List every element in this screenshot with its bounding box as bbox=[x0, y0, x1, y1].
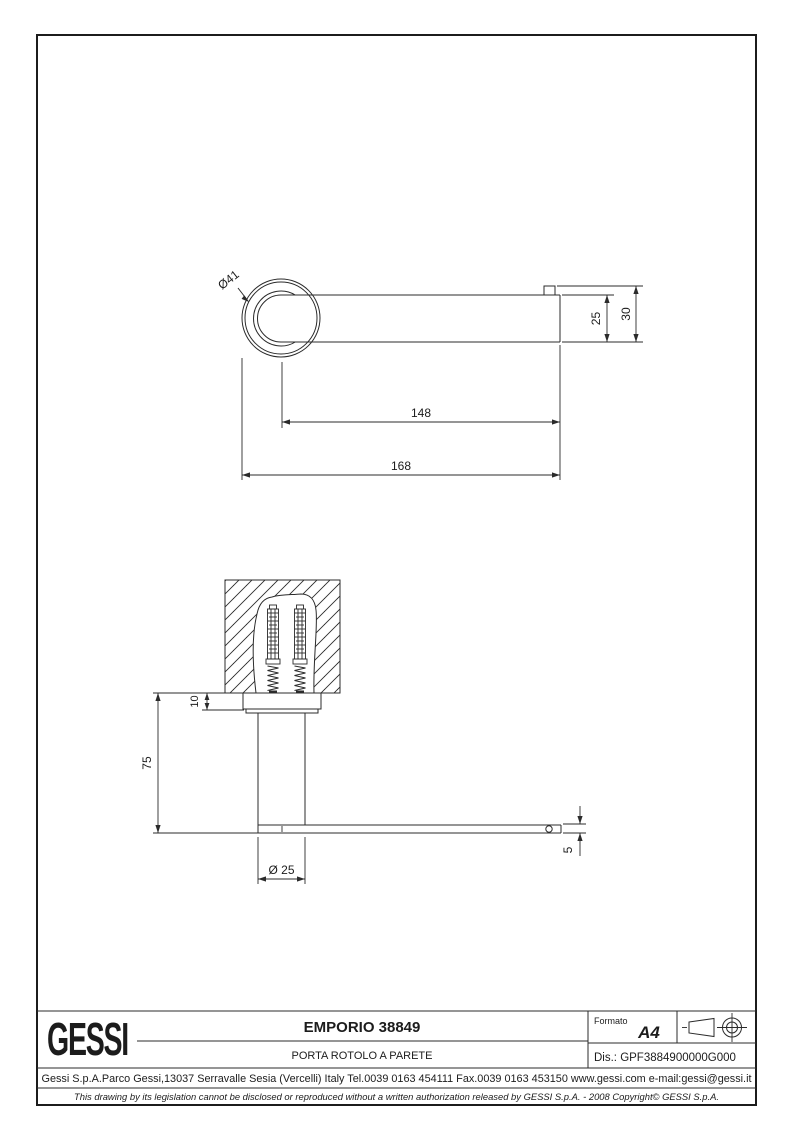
arrow-icon bbox=[604, 334, 609, 342]
drawing-sheet: Ø41 25 30 148 168 bbox=[0, 0, 794, 1123]
arrow-icon bbox=[205, 693, 210, 700]
dim-bar-height: 25 bbox=[589, 312, 603, 326]
page-frame bbox=[37, 35, 756, 1105]
company-info: Gessi S.p.A.Parco Gessi,13037 Serravalle… bbox=[42, 1073, 752, 1085]
arrow-icon bbox=[633, 286, 638, 294]
dim-end-height: 30 bbox=[619, 307, 633, 321]
product-description: PORTA ROTOLO A PARETE bbox=[291, 1050, 432, 1062]
title-block: GESSI EMPORIO 38849 PORTA ROTOLO A PARET… bbox=[37, 1011, 756, 1103]
arrow-icon bbox=[155, 825, 160, 833]
arrow-icon bbox=[552, 472, 560, 477]
dim-length-from-axis: 148 bbox=[411, 406, 431, 420]
arrow-icon bbox=[577, 833, 582, 841]
front-view: Ø41 25 30 148 168 bbox=[215, 267, 643, 480]
end-hole bbox=[546, 826, 552, 832]
dim-bar-thickness: 5 bbox=[561, 846, 575, 853]
first-angle-projection-target-icon bbox=[717, 1013, 747, 1042]
first-angle-projection-cone-icon bbox=[682, 1019, 714, 1037]
technical-drawing-canvas: Ø41 25 30 148 168 bbox=[0, 0, 794, 1123]
dim-flange-thickness: 10 bbox=[189, 695, 201, 707]
arrow-icon bbox=[577, 816, 582, 824]
dim-overall-length: 168 bbox=[391, 459, 411, 473]
arrow-icon bbox=[242, 472, 250, 477]
bar-root-arc bbox=[254, 291, 296, 346]
flange-lip bbox=[246, 709, 318, 713]
drawing-number: Dis.: GPF3884900000G000 bbox=[594, 1052, 736, 1064]
formato-value: A4 bbox=[637, 1023, 660, 1042]
mounting-flange bbox=[243, 693, 321, 709]
arrow-icon bbox=[258, 876, 266, 881]
side-view: 75 10 Ø 25 5 bbox=[140, 580, 586, 884]
arrow-icon bbox=[297, 876, 305, 881]
drill-hole-outline bbox=[253, 594, 316, 693]
flange-inner-ring bbox=[245, 282, 317, 354]
product-title: EMPORIO 38849 bbox=[304, 1019, 421, 1036]
end-stop-tab bbox=[544, 286, 555, 295]
arrow-icon bbox=[282, 419, 290, 424]
legal-notice: This drawing by its legislation cannot b… bbox=[74, 1092, 719, 1103]
arrow-icon bbox=[604, 295, 609, 303]
bar-end-cap-arc bbox=[257, 295, 281, 342]
dim-post-diameter: Ø 25 bbox=[268, 863, 294, 877]
formato-label: Formato bbox=[594, 1016, 628, 1026]
arrow-icon bbox=[155, 693, 160, 701]
dim-height: 75 bbox=[140, 756, 154, 770]
arrow-icon bbox=[205, 703, 210, 710]
leader-arrow-icon bbox=[242, 295, 249, 302]
arrow-icon bbox=[552, 419, 560, 424]
arrow-icon bbox=[633, 334, 638, 342]
gessi-logo: GESSI bbox=[47, 1014, 128, 1066]
